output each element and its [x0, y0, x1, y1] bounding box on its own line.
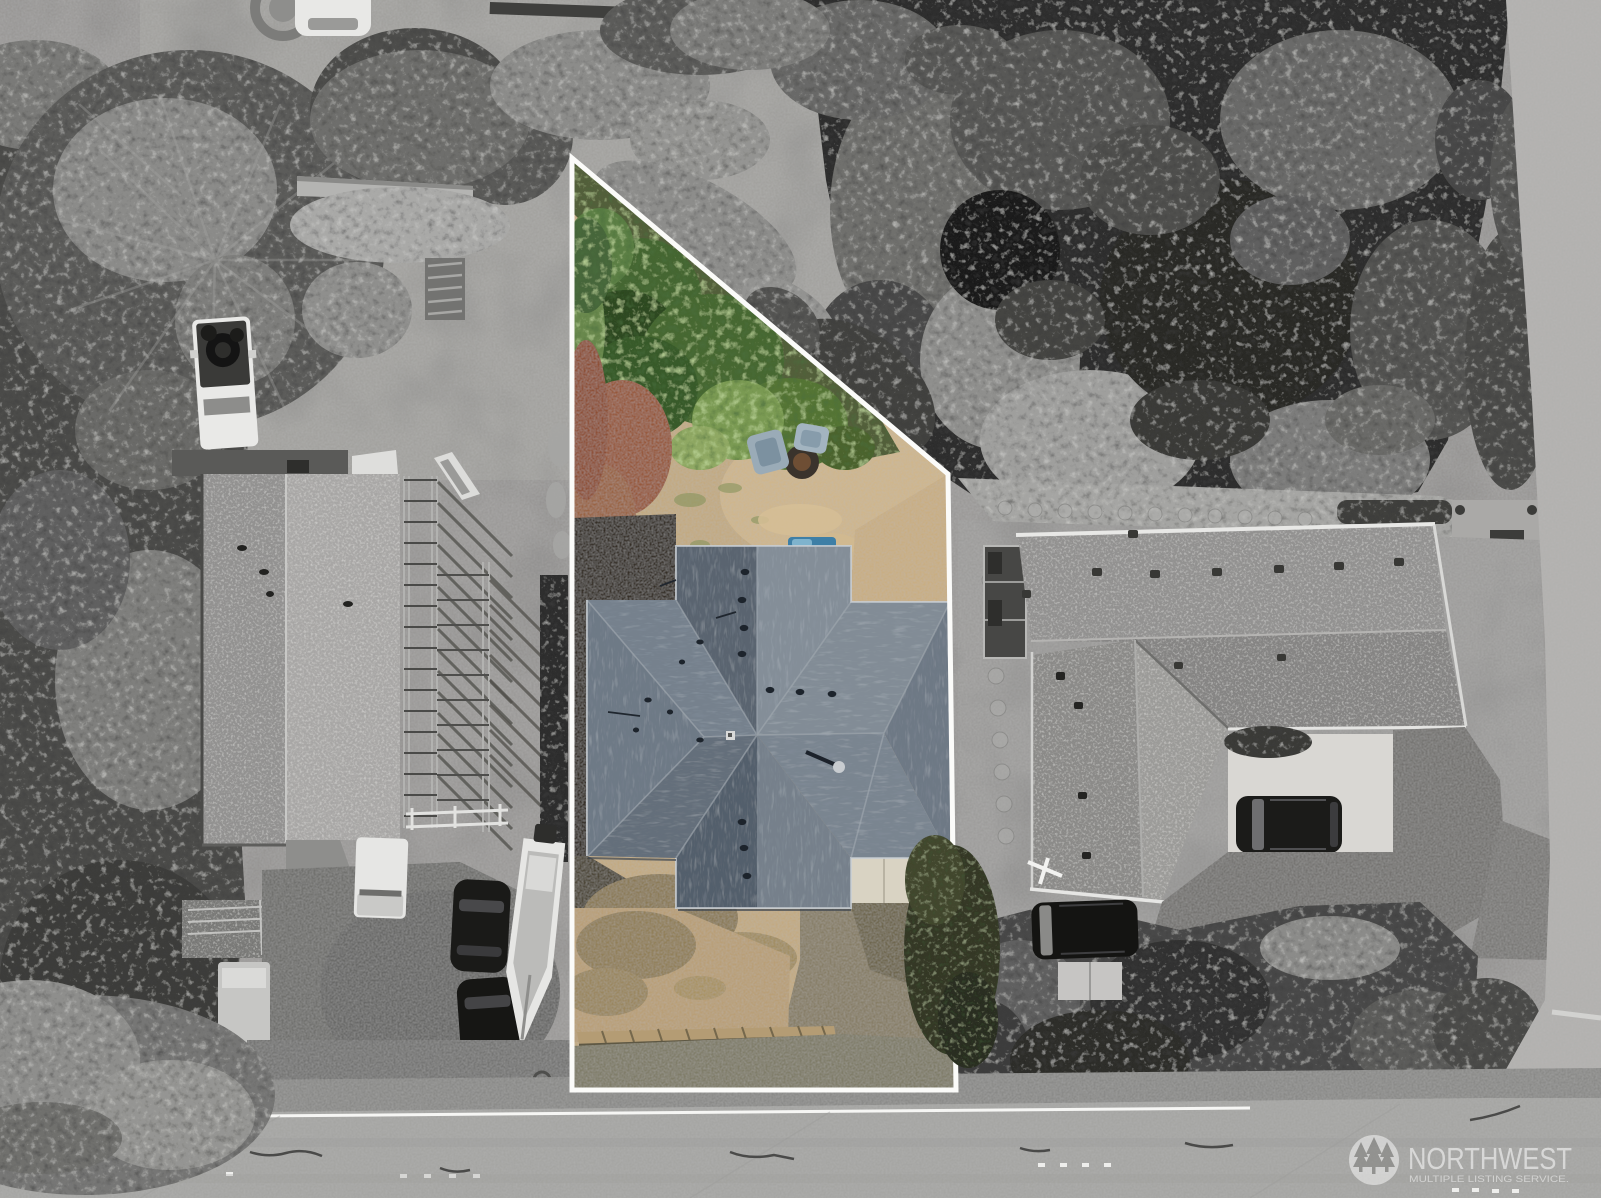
svg-text:NORTHWEST: NORTHWEST: [1408, 1141, 1572, 1176]
svg-text:MULTIPLE LISTING SERVICE.: MULTIPLE LISTING SERVICE.: [1409, 1174, 1569, 1185]
